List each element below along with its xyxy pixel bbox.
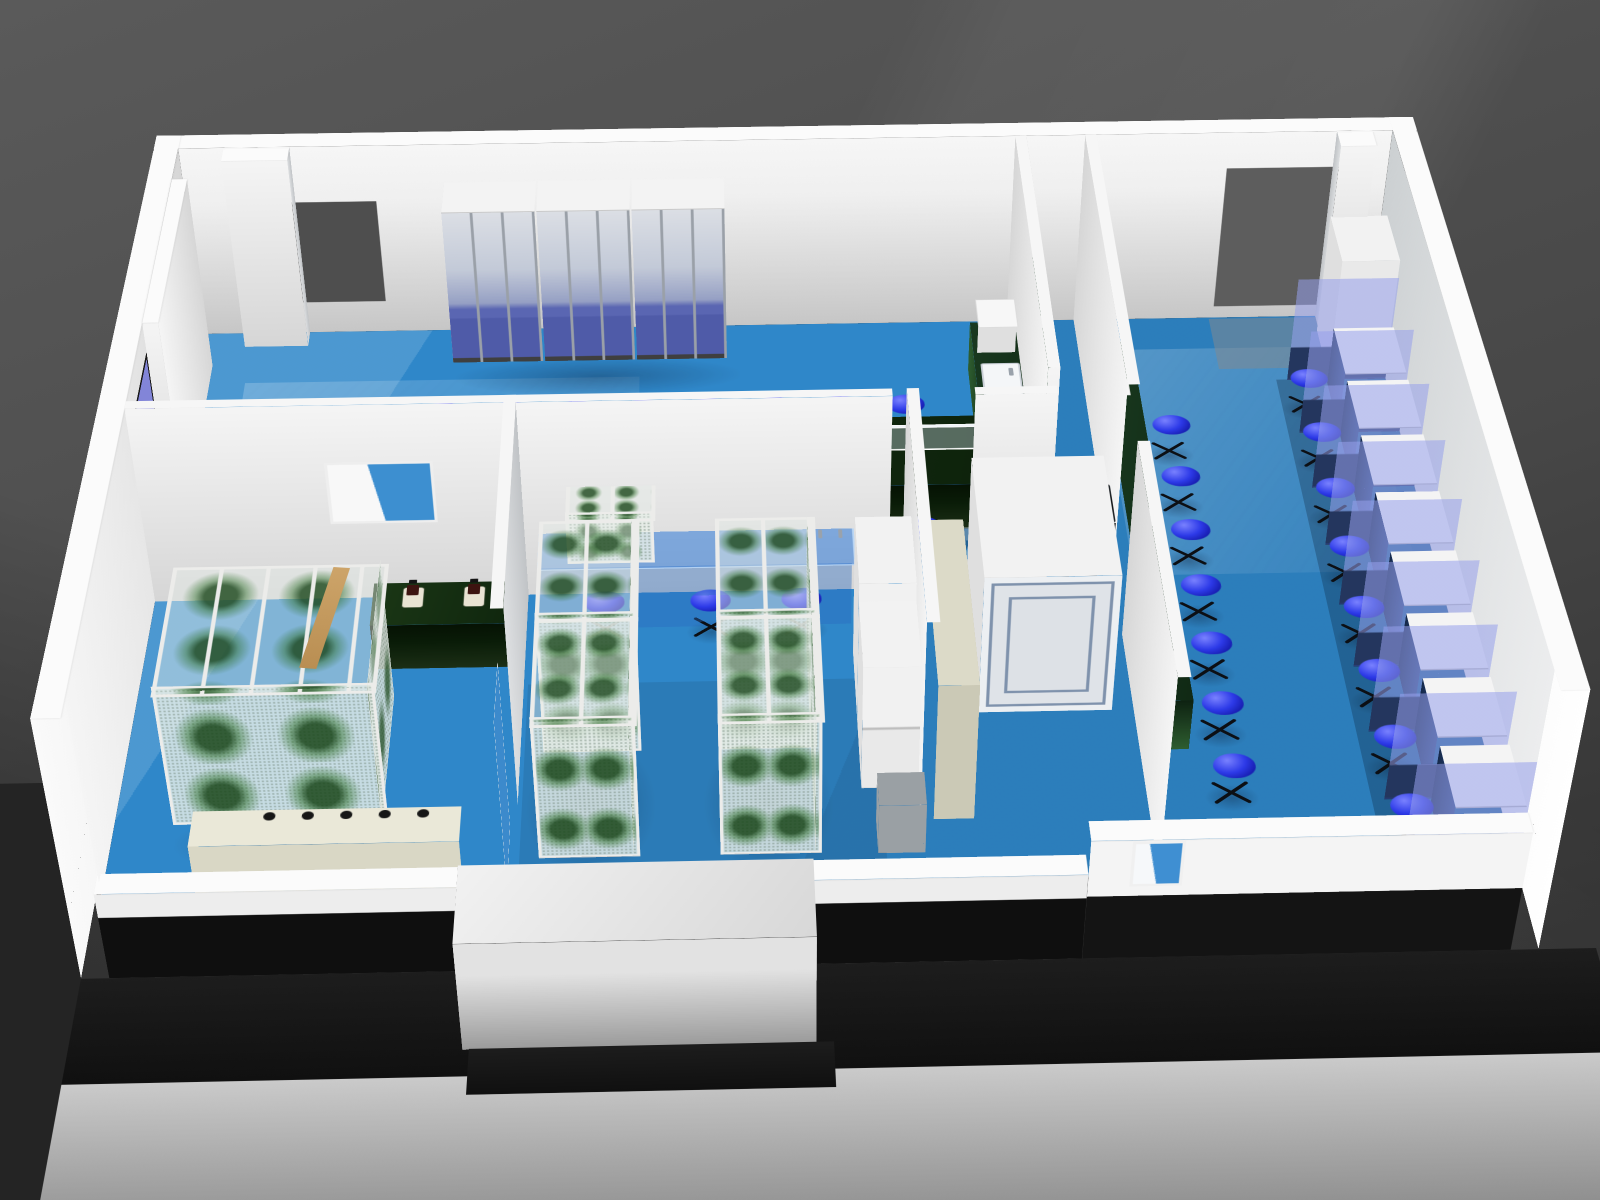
north-pillar-right-top	[1337, 130, 1377, 146]
entrance-porch-top	[452, 859, 817, 945]
room3-gray-box-south	[878, 805, 927, 853]
microscope-arm	[468, 584, 481, 595]
table-faucet	[838, 529, 843, 538]
north-pillar-left-top	[221, 147, 289, 161]
south-window-right	[1129, 841, 1186, 887]
table-faucet	[818, 530, 822, 539]
plant-rack-b2-top	[716, 614, 825, 725]
room4-chamber-south	[978, 575, 1122, 712]
dispenser-box-south	[977, 326, 1016, 353]
microscope-eyepiece	[409, 580, 418, 584]
porch-shadow	[466, 1041, 836, 1095]
glass-cabinet-3-south	[631, 208, 727, 360]
room3-fridge-stack-2-top	[859, 601, 924, 668]
plant-rack-a2-top	[529, 617, 638, 728]
glass-cabinet-1-top	[441, 181, 536, 213]
room4-chamber-top	[971, 456, 1122, 578]
south-wall-outer-right	[1087, 832, 1533, 896]
microscope-eyepiece	[470, 579, 478, 583]
room4-cream-cabinet-south	[934, 685, 981, 819]
plant-rack-room2-top	[150, 564, 389, 698]
plant-rack-b2-front	[718, 712, 823, 855]
north-wall-face	[178, 130, 1392, 334]
plant-rack-a2-front	[529, 715, 640, 858]
interior-window	[324, 461, 438, 524]
glass-cabinet-2-top	[536, 180, 630, 212]
room2-bench-south	[370, 623, 513, 669]
glass-cabinet-3-top	[631, 178, 724, 210]
plant-rack-room2-front	[151, 683, 389, 825]
glass-cabinet-2-south	[536, 210, 635, 362]
plant-rack-b1-top	[715, 517, 820, 620]
microscope-arm	[406, 585, 419, 596]
plant-rack-a1-top	[534, 520, 639, 623]
lab-3d-scene	[101, 315, 1517, 896]
room3-fridge-stack-2-south	[861, 667, 924, 789]
south-foundation-right	[1082, 888, 1522, 958]
room3-fridge-stack-1-top	[855, 516, 919, 584]
room3-gray-box-top	[877, 772, 927, 806]
glass-cabinet-1-south	[441, 211, 543, 363]
sink-faucet	[1008, 368, 1014, 376]
dispenser-box-top	[975, 299, 1019, 328]
entrance-porch-south	[452, 937, 817, 1050]
